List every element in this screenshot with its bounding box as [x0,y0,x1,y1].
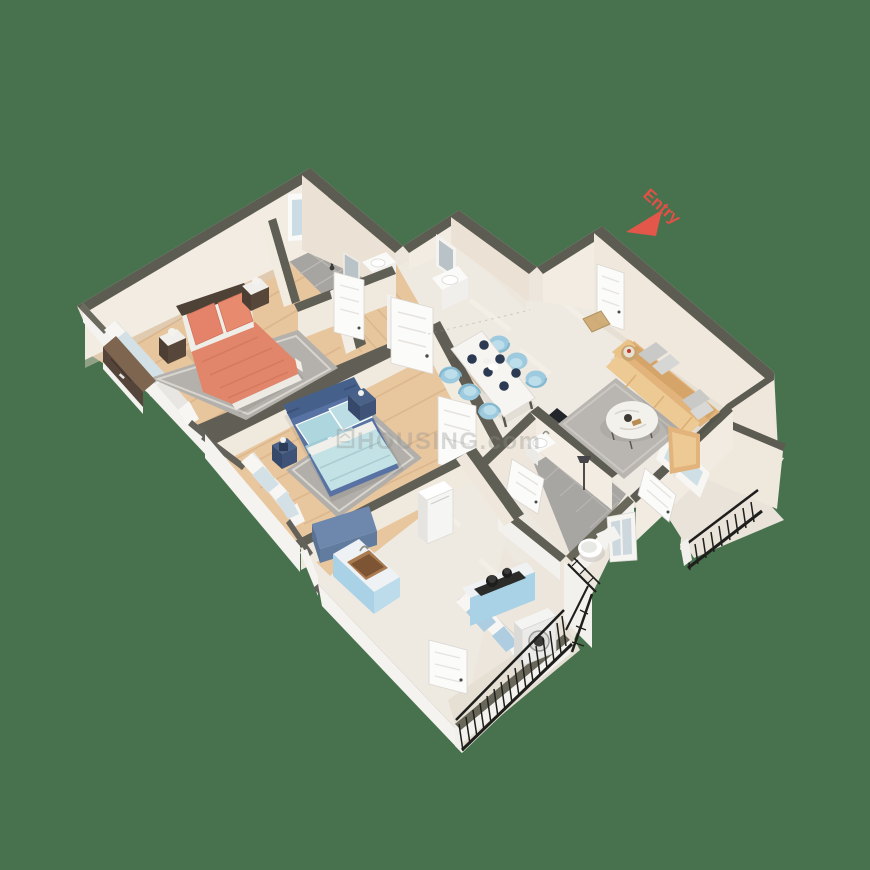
svg-text:HOUSING.com: HOUSING.com [357,428,542,455]
